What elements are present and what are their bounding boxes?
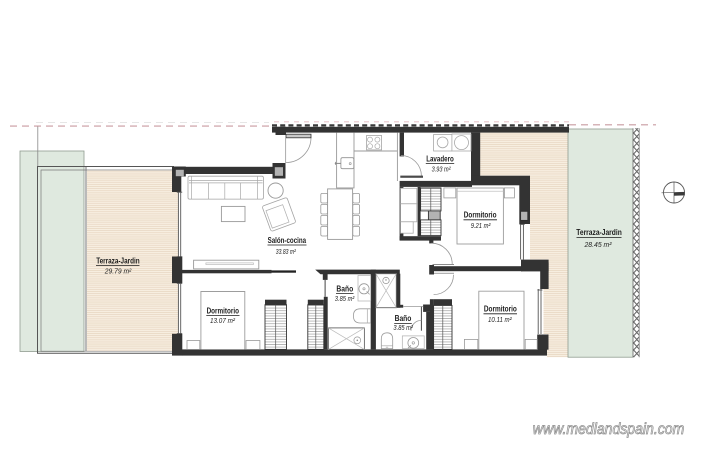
svg-text:28.45 m²: 28.45 m² — [584, 242, 613, 249]
svg-text:29.79 m²: 29.79 m² — [104, 269, 132, 276]
svg-text:13.07 m²: 13.07 m² — [210, 318, 236, 325]
svg-text:Terraza-Jardin: Terraza-Jardin — [576, 228, 622, 237]
svg-text:Baño: Baño — [395, 314, 412, 323]
svg-text:Baño: Baño — [336, 284, 353, 293]
svg-text:Terraza-Jardin: Terraza-Jardin — [96, 256, 140, 265]
svg-text:Salón-cocina: Salón-cocina — [268, 236, 307, 245]
svg-text:Dormitorio: Dormitorio — [464, 211, 497, 220]
svg-text:Dormitorio: Dormitorio — [484, 305, 517, 314]
svg-text:Lavadero: Lavadero — [426, 154, 454, 163]
svg-text:33.83 m²: 33.83 m² — [276, 249, 296, 256]
svg-text:Dormitorio: Dormitorio — [207, 306, 239, 315]
svg-text:3.93 m²: 3.93 m² — [432, 166, 452, 173]
svg-text:9.21 m²: 9.21 m² — [471, 223, 491, 230]
svg-text:3.85 m²: 3.85 m² — [393, 325, 413, 332]
svg-text:3.85 m²: 3.85 m² — [335, 296, 355, 303]
svg-text:10.11 m²: 10.11 m² — [488, 317, 512, 324]
svg-text:www.medlandspain.com: www.medlandspain.com — [533, 421, 685, 438]
